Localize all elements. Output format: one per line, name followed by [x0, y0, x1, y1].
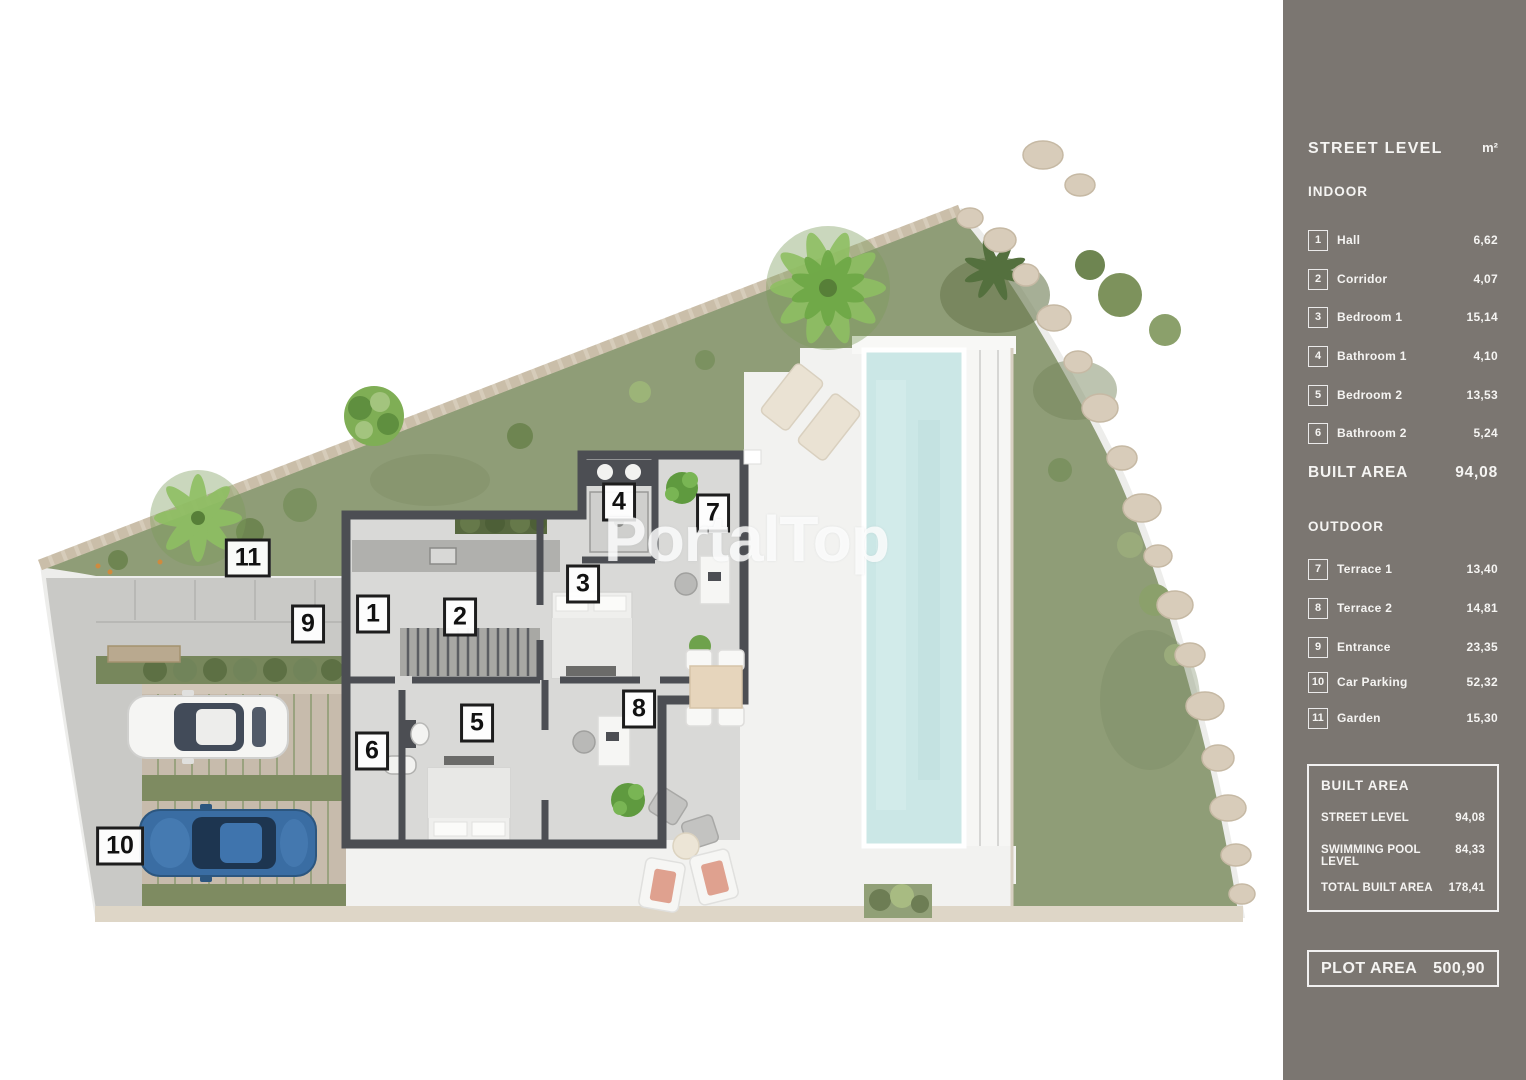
indoor-section-heading: INDOOR — [1308, 184, 1498, 199]
shrub-planter — [864, 884, 932, 918]
room-number-chip: 9 — [1308, 637, 1328, 658]
palm-tree-large — [766, 226, 890, 350]
plan-label-bedroom2: 5 — [460, 704, 494, 743]
chair — [573, 731, 595, 753]
plan-label-terrace2: 8 — [622, 690, 656, 729]
plan-label-bathroom2: 6 — [355, 732, 389, 771]
indoor-built-area-total: BUILT AREA 94,08 — [1308, 464, 1498, 482]
room-number-chip: 10 — [1308, 672, 1328, 693]
chair — [675, 573, 697, 595]
dining-table — [690, 666, 742, 708]
blue-car — [140, 804, 316, 882]
room-number-chip: 7 — [1308, 559, 1328, 580]
plan-label-car-parking: 10 — [96, 827, 144, 866]
area-row-bathroom1: 4 Bathroom 1 4,10 — [1308, 345, 1498, 367]
area-row-bedroom2: 5 Bedroom 2 13,53 — [1308, 384, 1498, 406]
area-summary-sidebar: STREET LEVEL m² INDOOR 1 Hall 6,62 2 Cor… — [1283, 0, 1526, 1080]
built-area-total: TOTAL BUILT AREA 178,41 — [1321, 882, 1485, 894]
white-car — [128, 690, 288, 764]
plan-label-garden: 11 — [225, 539, 271, 578]
watermark: PortalTop — [604, 502, 889, 576]
room-number-chip: 11 — [1308, 708, 1328, 729]
toilet — [411, 723, 429, 745]
unit-label: m² — [1482, 140, 1498, 155]
area-row-car-parking: 10 Car Parking 52,32 — [1308, 671, 1498, 693]
room-number-chip: 2 — [1308, 269, 1328, 290]
area-row-bathroom2: 6 Bathroom 2 5,24 — [1308, 422, 1498, 444]
room-number-chip: 4 — [1308, 346, 1328, 367]
sink-icon — [625, 464, 641, 480]
plan-label-hall: 1 — [356, 595, 390, 634]
bed-bedroom1 — [552, 592, 632, 678]
wall-marker — [744, 450, 761, 464]
built-area-summary-box: BUILT AREA STREET LEVEL 94,08 SWIMMING P… — [1307, 764, 1499, 912]
room-number-chip: 5 — [1308, 385, 1328, 406]
built-area-pool-level: SWIMMING POOL LEVEL 84,33 — [1321, 844, 1485, 868]
room-number-chip: 1 — [1308, 230, 1328, 251]
sink-icon — [597, 464, 613, 480]
bed-bedroom2 — [428, 756, 510, 840]
floor-plan-page: 1 2 3 4 5 6 7 8 9 10 11 PortalTop STREET… — [0, 0, 1526, 1080]
plot-area-value: 500,90 — [1433, 960, 1485, 978]
planter-box — [108, 646, 180, 662]
room-number-chip: 6 — [1308, 423, 1328, 444]
leafy-tree — [344, 386, 404, 446]
room-number-chip: 8 — [1308, 598, 1328, 619]
plan-label-bedroom1: 3 — [566, 565, 600, 604]
pouf — [673, 833, 699, 859]
area-row-entrance: 9 Entrance 23,35 — [1308, 636, 1498, 658]
area-row-terrace2: 8 Terrace 2 14,81 — [1308, 597, 1498, 619]
area-row-corridor: 2 Corridor 4,07 — [1308, 268, 1498, 290]
plan-label-corridor: 2 — [443, 598, 477, 637]
outdoor-section-heading: OUTDOOR — [1308, 519, 1498, 534]
area-row-terrace1: 7 Terrace 1 13,40 — [1308, 558, 1498, 580]
built-area-street-level: STREET LEVEL 94,08 — [1321, 812, 1485, 824]
sidebar-header: STREET LEVEL m² — [1308, 140, 1498, 158]
plot-area-label: PLOT AREA — [1321, 960, 1417, 978]
area-row-hall: 1 Hall 6,62 — [1308, 229, 1498, 251]
area-row-bedroom1: 3 Bedroom 1 15,14 — [1308, 306, 1498, 328]
built-area-box-title: BUILT AREA — [1321, 778, 1409, 793]
street-level-floor-plan: 1 2 3 4 5 6 7 8 9 10 11 PortalTop — [0, 0, 1283, 1080]
swimming-pool — [840, 336, 1016, 906]
area-row-garden: 11 Garden 15,30 — [1308, 707, 1498, 729]
plot-area-box: PLOT AREA 500,90 — [1307, 950, 1499, 987]
level-title: STREET LEVEL — [1308, 140, 1443, 158]
plan-label-entrance: 9 — [291, 605, 325, 644]
room-number-chip: 3 — [1308, 307, 1328, 328]
